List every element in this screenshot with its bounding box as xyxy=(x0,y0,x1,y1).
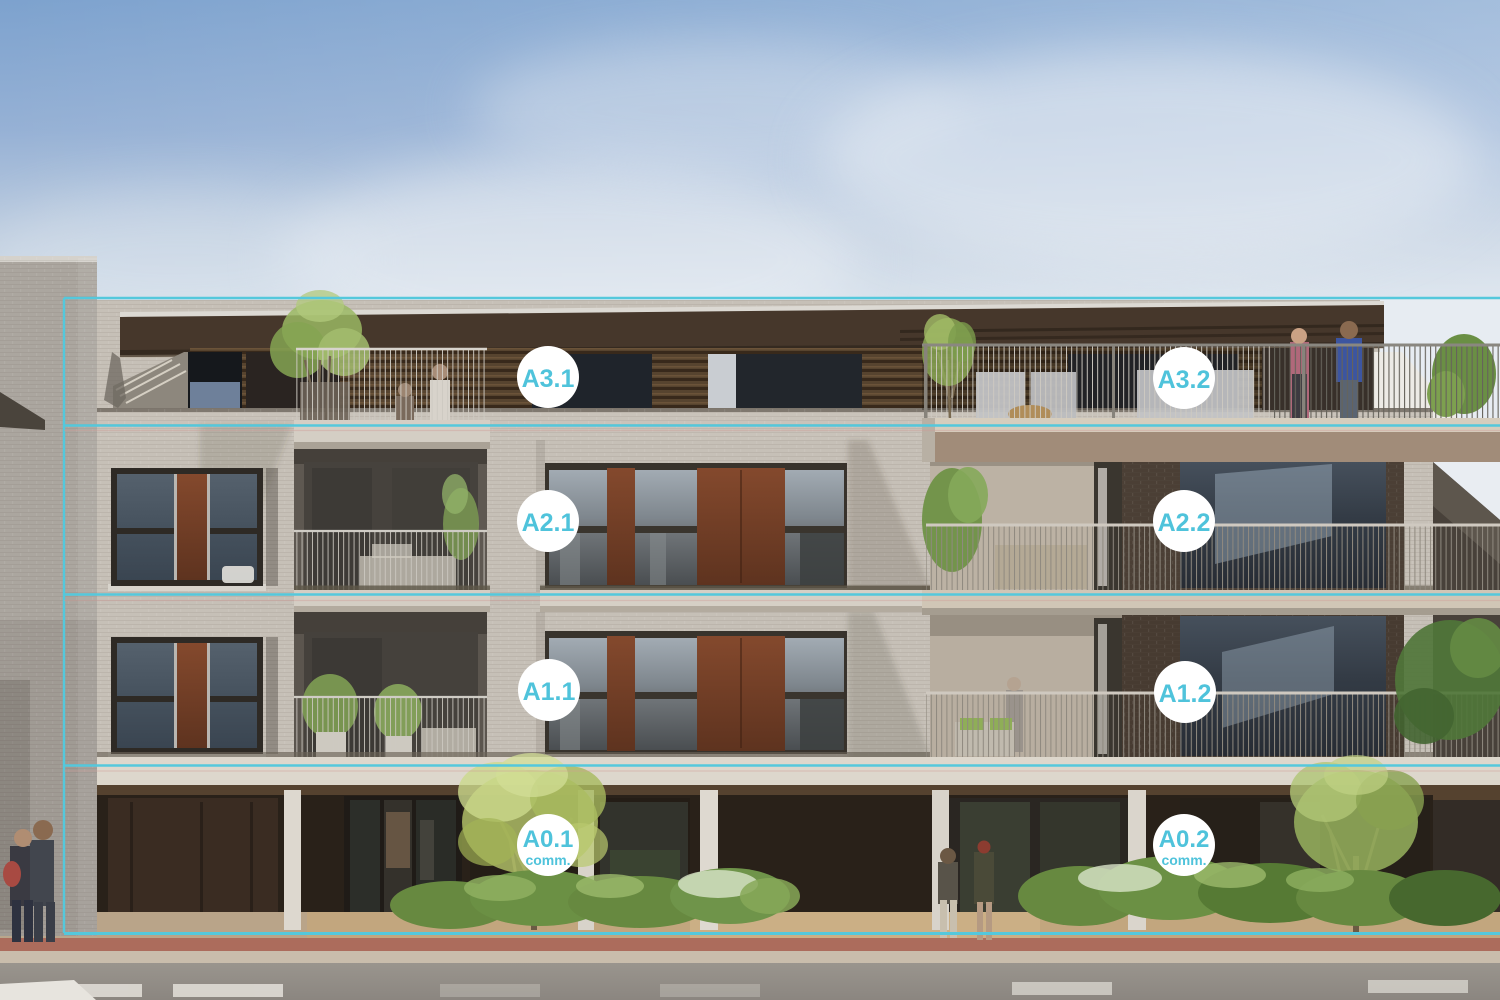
svg-text:comm.: comm. xyxy=(1161,852,1206,868)
svg-text:A3.1: A3.1 xyxy=(522,365,575,393)
svg-text:A2.2: A2.2 xyxy=(1158,509,1211,537)
svg-text:A0.2: A0.2 xyxy=(1159,826,1210,853)
svg-text:comm.: comm. xyxy=(525,852,570,868)
svg-text:A1.1: A1.1 xyxy=(523,678,576,706)
svg-text:A0.1: A0.1 xyxy=(523,826,574,853)
svg-text:A3.2: A3.2 xyxy=(1158,366,1211,394)
svg-text:A2.1: A2.1 xyxy=(522,509,575,537)
svg-text:A1.2: A1.2 xyxy=(1159,680,1212,708)
